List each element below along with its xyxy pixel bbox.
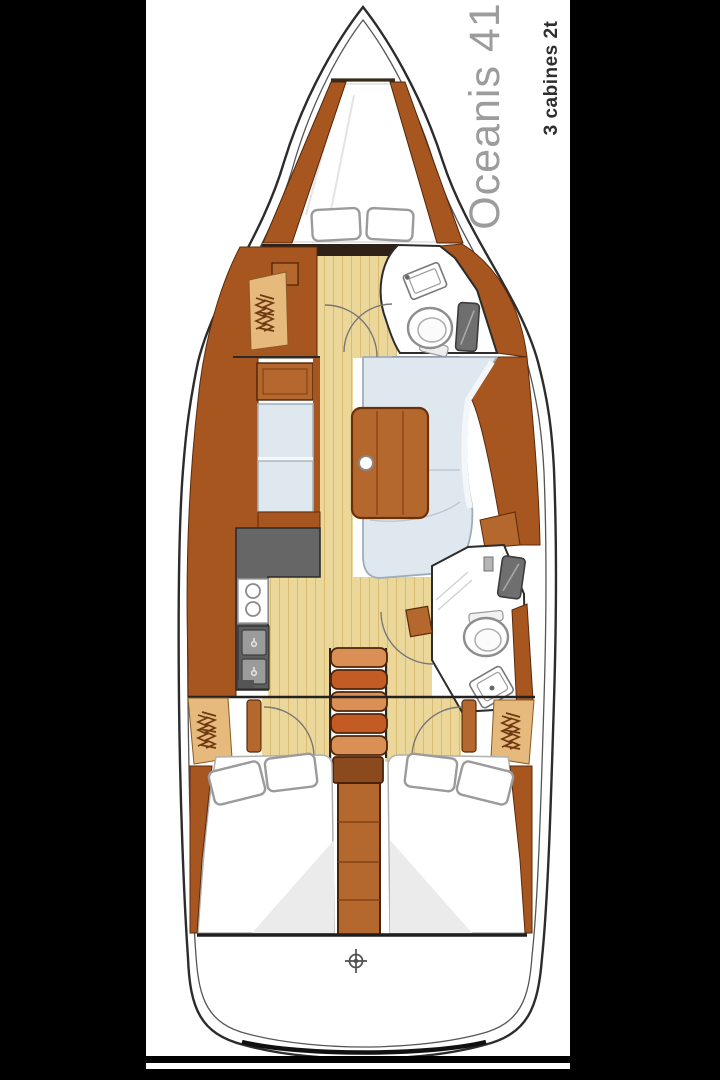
aft-head-toilet [464, 610, 508, 656]
aft-head-shower-panel [497, 556, 525, 600]
page-title: Oceanis 41 [461, 2, 509, 230]
letterbox-left [0, 0, 146, 1080]
salon-table [352, 408, 428, 518]
letterbox-right [570, 0, 720, 1080]
footer-bar-thin [146, 1056, 570, 1063]
aft-head-door-leaf [406, 606, 432, 636]
floorplan-page: Oceanis 41 3 cabines 2t [0, 0, 720, 1080]
shower-mixer [484, 557, 493, 571]
v-berth-pillow-right [366, 208, 414, 241]
pillow [264, 753, 318, 792]
keel-beam [338, 783, 380, 935]
galley-hatch [238, 680, 254, 688]
page-subtitle: 3 cabines 2t [541, 20, 562, 135]
boat-floorplan: Oceanis 41 3 cabines 2t [0, 0, 720, 1080]
companionway-steps [331, 648, 387, 755]
settee-side-trim [313, 358, 320, 530]
v-berth-pillow-left [311, 208, 361, 241]
forward-hanging-locker [249, 272, 288, 350]
port-cabin-door-leaf [247, 700, 261, 752]
pillow [404, 753, 458, 792]
table-cup-holder [359, 456, 373, 470]
starboard-cabin-door-leaf [462, 700, 476, 752]
settee-front-trim [258, 512, 320, 529]
footer-bar-thick [0, 1069, 720, 1080]
step-platform [333, 757, 383, 783]
forward-head-shower-panel [455, 302, 479, 351]
